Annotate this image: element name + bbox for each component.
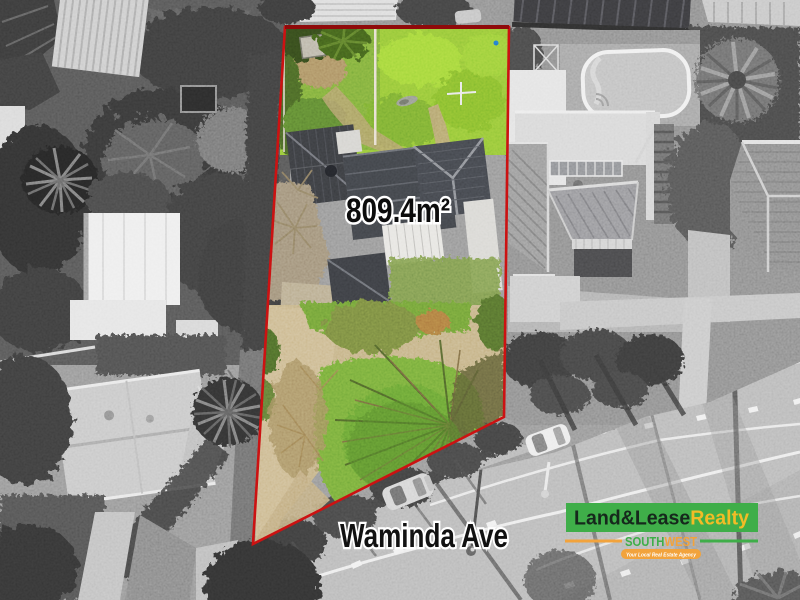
- svg-text:SOUTHWEST: SOUTHWEST: [625, 535, 697, 549]
- svg-text:Waminda Ave: Waminda Ave: [340, 517, 508, 554]
- svg-text:Land&LeaseRealty: Land&LeaseRealty: [574, 508, 750, 530]
- svg-text:809.4m²: 809.4m²: [346, 192, 450, 230]
- svg-text:Your Local Real Estate Agency: Your Local Real Estate Agency: [626, 552, 697, 558]
